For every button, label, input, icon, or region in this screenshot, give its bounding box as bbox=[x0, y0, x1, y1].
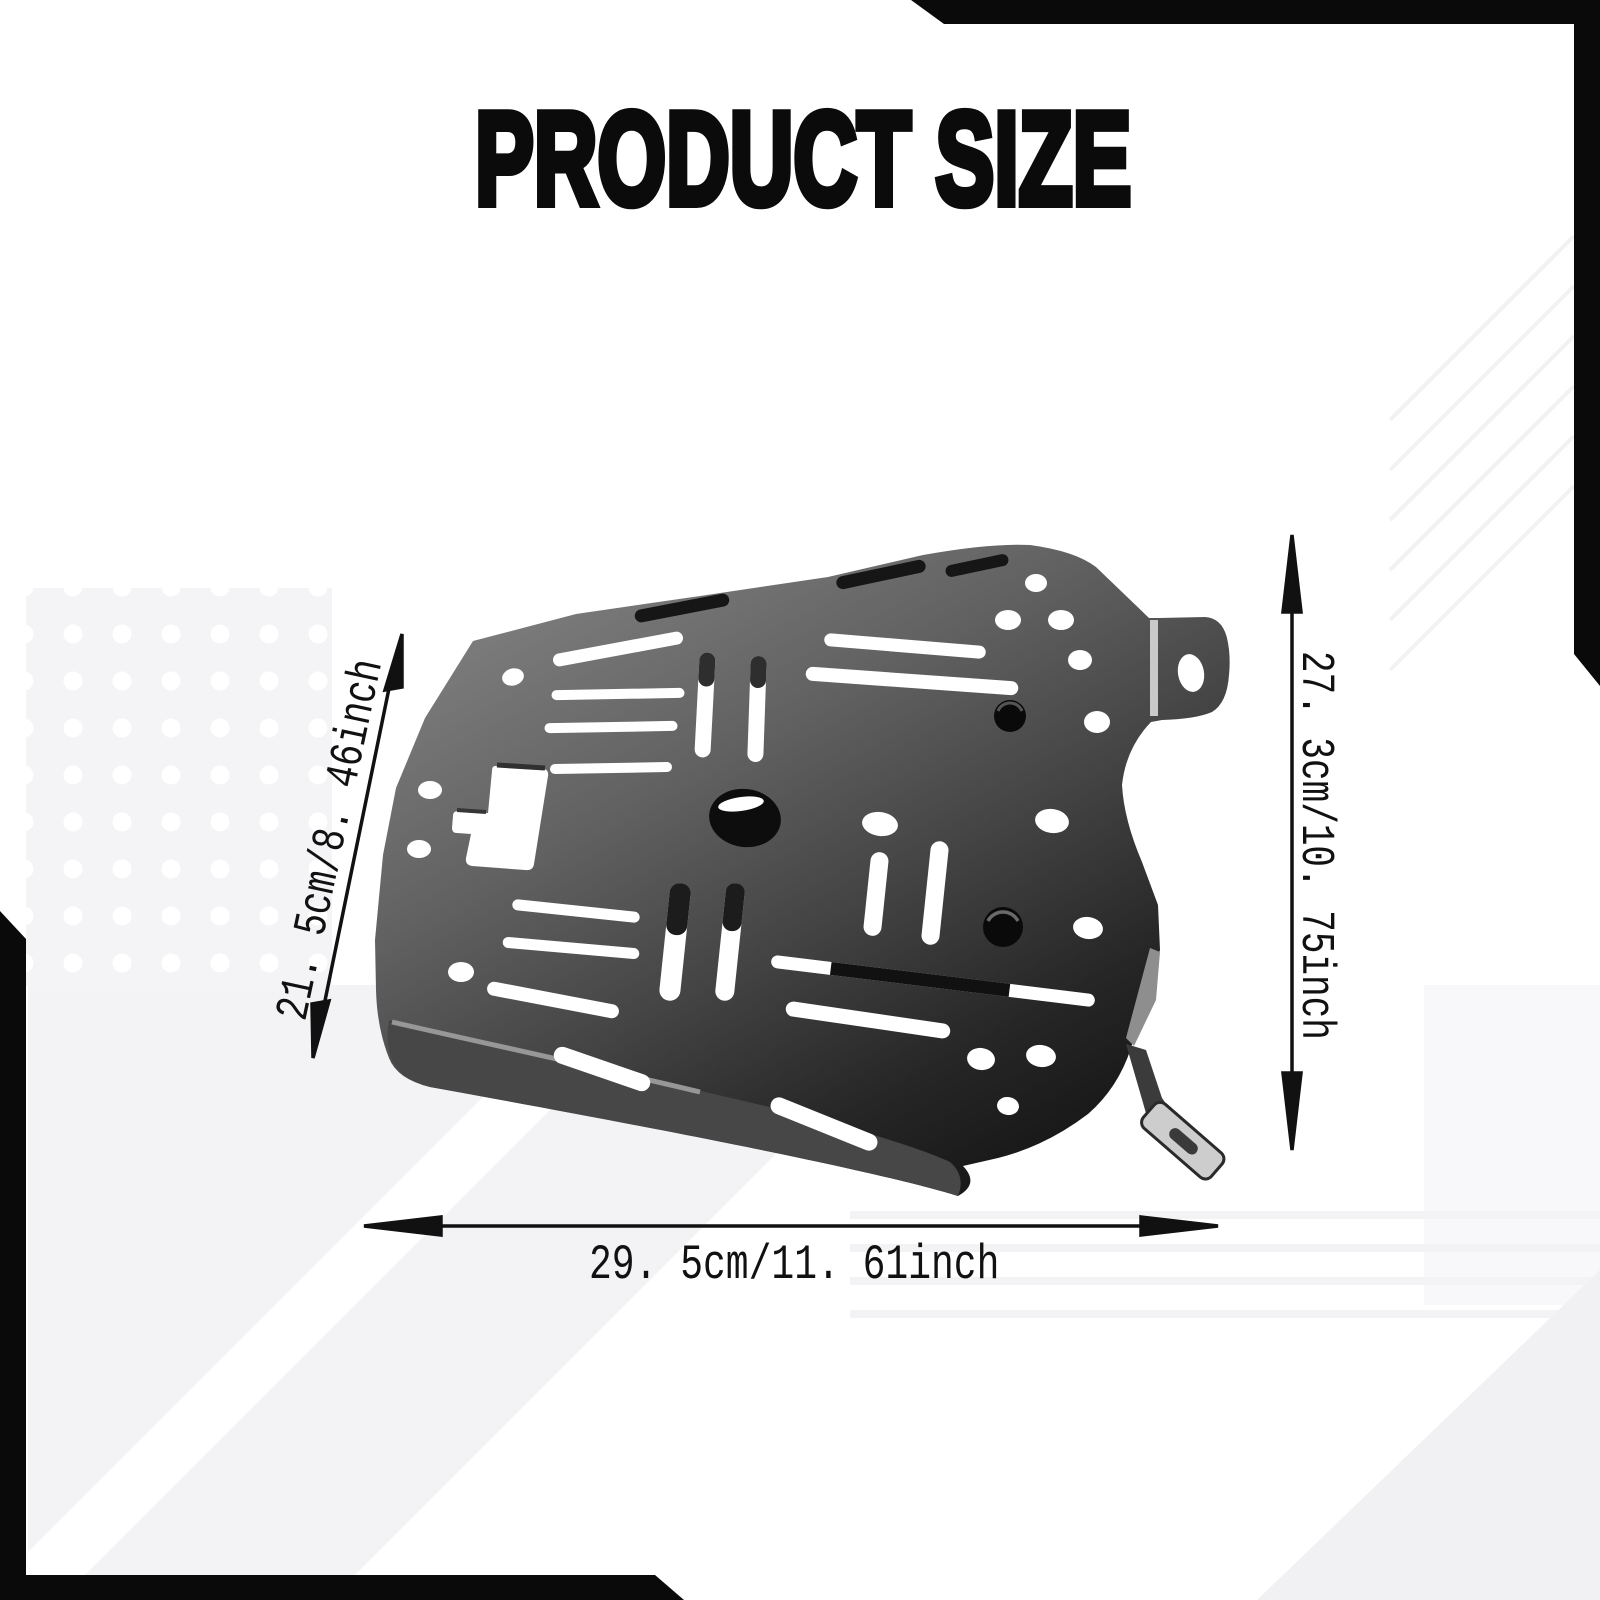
svg-text:27. 3cm/10. 75inch: 27. 3cm/10. 75inch bbox=[1288, 651, 1342, 1040]
svg-text:29. 5cm/11. 61inch: 29. 5cm/11. 61inch bbox=[589, 1238, 999, 1294]
svg-text:PRODUCT SIZE: PRODUCT SIZE bbox=[475, 84, 1131, 232]
